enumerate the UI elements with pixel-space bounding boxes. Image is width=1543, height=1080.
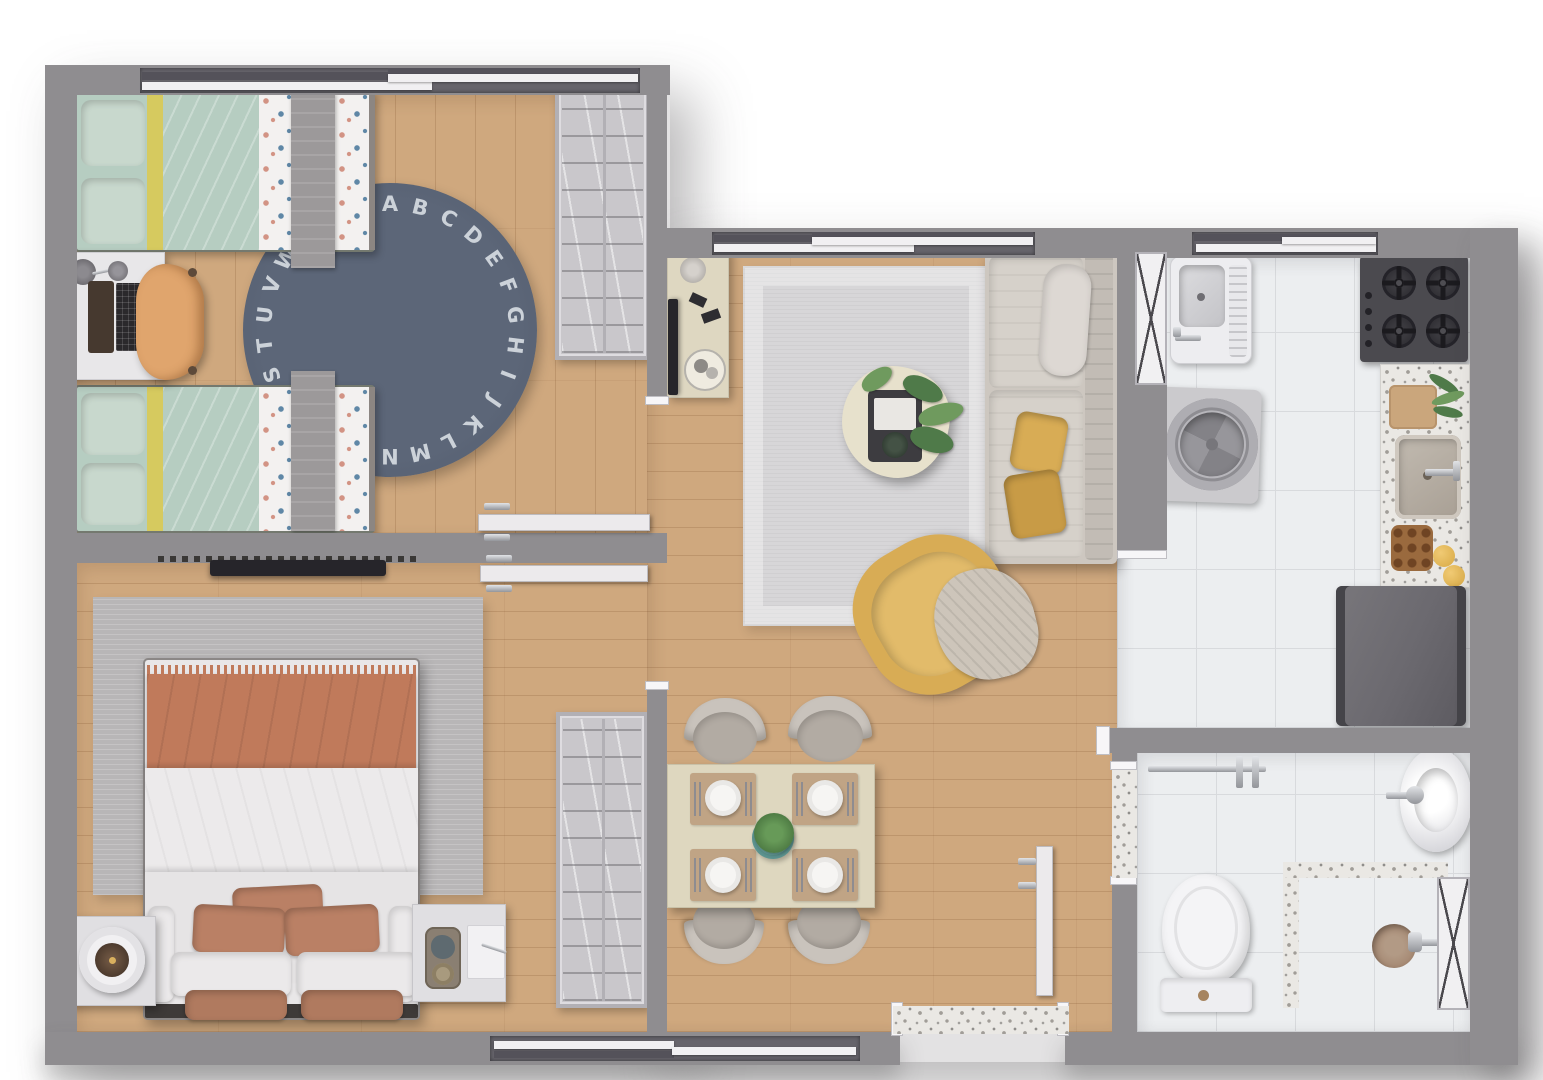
nightstand-right bbox=[412, 904, 506, 1002]
wall-cap bbox=[645, 396, 669, 405]
toilet-seat bbox=[1174, 886, 1238, 970]
fork bbox=[699, 858, 701, 892]
lamp-bulb bbox=[109, 957, 116, 964]
decor-ring bbox=[432, 963, 454, 985]
laundry-tank bbox=[1170, 256, 1252, 364]
towel-hook bbox=[1252, 756, 1259, 788]
dining-chair bbox=[788, 696, 872, 768]
spoon bbox=[852, 782, 854, 816]
knife bbox=[847, 858, 849, 892]
window-sash bbox=[1282, 237, 1376, 244]
knife bbox=[847, 782, 849, 816]
wall-cap bbox=[645, 681, 669, 690]
fork bbox=[796, 782, 798, 816]
spoon bbox=[750, 782, 752, 816]
pillow bbox=[81, 100, 145, 166]
rug-letter: N bbox=[381, 444, 399, 468]
master-double-bed bbox=[143, 658, 420, 1020]
rug-letter: I bbox=[495, 367, 520, 383]
fork bbox=[694, 858, 696, 892]
dining-table bbox=[667, 764, 875, 908]
kids-twin-bed-top bbox=[75, 90, 375, 252]
lemon bbox=[1433, 545, 1455, 567]
towel-bar bbox=[1148, 766, 1266, 772]
cooktop-knob bbox=[1365, 308, 1372, 315]
tv-panel bbox=[668, 299, 678, 395]
duvet-fold bbox=[145, 768, 418, 876]
window-glass bbox=[494, 1051, 674, 1058]
tank-drain bbox=[1197, 293, 1205, 301]
wall-bathroom-north bbox=[1098, 728, 1518, 753]
desk-chair bbox=[136, 264, 204, 380]
faucet-cross-handle bbox=[1406, 786, 1424, 804]
pillow-terracotta bbox=[284, 904, 380, 957]
wall-kids-east bbox=[647, 95, 667, 400]
door-handle bbox=[1018, 882, 1036, 889]
pillow bbox=[81, 178, 145, 244]
spoon bbox=[750, 858, 752, 892]
floorplan-canvas: ABCDEFGHIJKLMNOPQRSTUVWXYZ bbox=[0, 0, 1543, 1080]
centerpiece-plant bbox=[754, 813, 794, 853]
toilet bbox=[1154, 874, 1258, 1014]
plant-pot bbox=[882, 432, 908, 458]
blanket-stripe bbox=[147, 387, 163, 531]
washboard bbox=[1229, 265, 1247, 357]
entrance-door bbox=[1036, 846, 1053, 996]
flush-button bbox=[1198, 990, 1209, 1001]
master-window bbox=[490, 1036, 860, 1061]
shower-curb bbox=[1283, 878, 1299, 1008]
bathroom-window bbox=[1437, 877, 1470, 1010]
window-sash bbox=[812, 237, 1033, 245]
window-sash bbox=[672, 1047, 856, 1055]
rug-letter: V bbox=[258, 273, 286, 297]
fork bbox=[796, 858, 798, 892]
window-sash bbox=[142, 82, 432, 90]
chair-seat bbox=[797, 710, 863, 762]
rug-letter: A bbox=[382, 192, 398, 216]
burner bbox=[1382, 314, 1416, 348]
kitchen-counter bbox=[1380, 364, 1470, 588]
wall-master-east bbox=[647, 690, 667, 1032]
rug-letter: J bbox=[482, 392, 506, 412]
fork bbox=[801, 858, 803, 892]
spoon bbox=[852, 858, 854, 892]
pillow bbox=[81, 463, 145, 525]
knife bbox=[745, 858, 747, 892]
burner bbox=[1382, 266, 1416, 300]
rug-letter: F bbox=[494, 274, 522, 296]
tray-book bbox=[874, 398, 916, 430]
bed-frame bbox=[369, 92, 375, 250]
wall-cap bbox=[1096, 726, 1110, 755]
blanket-stripe bbox=[147, 92, 163, 250]
wall-cap bbox=[1117, 550, 1167, 559]
faucet-handle bbox=[1173, 327, 1181, 337]
window-sash bbox=[494, 1041, 674, 1049]
duvet bbox=[163, 92, 259, 250]
remote bbox=[689, 292, 708, 308]
wall-tv bbox=[210, 560, 386, 576]
rug-letter: S bbox=[258, 363, 286, 386]
laundry-window bbox=[1135, 252, 1167, 385]
door-handle bbox=[486, 585, 512, 592]
kids-window bbox=[140, 68, 640, 93]
burner bbox=[1426, 266, 1460, 300]
window-sash bbox=[1196, 244, 1376, 252]
pillow bbox=[81, 393, 145, 455]
sofa bbox=[985, 248, 1117, 564]
vase bbox=[680, 257, 706, 283]
rug-letter: E bbox=[480, 246, 508, 271]
door-handle bbox=[486, 555, 512, 562]
rug-letter: H bbox=[502, 335, 528, 355]
shower-curb bbox=[1283, 862, 1448, 878]
towel-hook bbox=[1236, 756, 1243, 788]
fork bbox=[699, 782, 701, 816]
dining-chair bbox=[684, 698, 766, 770]
entrance-threshold bbox=[893, 1006, 1069, 1034]
laptop-screen bbox=[88, 281, 114, 353]
knife bbox=[745, 782, 747, 816]
nightstand-left bbox=[68, 916, 156, 1006]
wall-bathroom-west-b bbox=[1112, 883, 1137, 1032]
rug-letter: L bbox=[437, 428, 460, 455]
rug-letter: G bbox=[502, 305, 528, 325]
kids-wardrobe bbox=[555, 88, 650, 360]
rug-letter: B bbox=[410, 194, 431, 221]
door-handle bbox=[484, 503, 510, 510]
placemat bbox=[792, 773, 858, 825]
lemon bbox=[1443, 565, 1465, 587]
burner bbox=[1426, 314, 1460, 348]
bathroom-round-sink bbox=[1400, 748, 1472, 852]
chair-knob bbox=[188, 366, 197, 375]
kids-bedroom-door bbox=[478, 514, 650, 531]
yellow-pillow bbox=[1002, 468, 1067, 540]
cooktop-knob bbox=[1365, 324, 1372, 331]
plate bbox=[807, 857, 843, 893]
remote bbox=[701, 308, 721, 324]
master-bedroom-door bbox=[480, 565, 648, 582]
fork bbox=[801, 782, 803, 816]
egg-tray bbox=[1391, 525, 1433, 571]
door-handle bbox=[1018, 858, 1036, 865]
herb-sprig bbox=[1432, 404, 1463, 420]
shower-head bbox=[1408, 932, 1422, 952]
window-sash bbox=[714, 244, 914, 252]
placemat bbox=[690, 849, 756, 901]
bottle bbox=[706, 367, 718, 379]
pillow-terracotta bbox=[301, 990, 403, 1020]
fork bbox=[694, 782, 696, 816]
cooktop-knob bbox=[1365, 340, 1372, 347]
master-closet bbox=[556, 712, 648, 1008]
bolster-pillow bbox=[1037, 262, 1093, 377]
faucet-handle bbox=[1453, 461, 1460, 481]
door-handle bbox=[484, 534, 510, 541]
gray-throw bbox=[291, 92, 335, 268]
duvet bbox=[163, 387, 259, 531]
placemat bbox=[792, 849, 858, 901]
wall-east bbox=[1470, 228, 1518, 1065]
cutting-board bbox=[1389, 385, 1437, 429]
gas-cooktop bbox=[1360, 256, 1468, 362]
rug-letter: M bbox=[407, 438, 433, 466]
wall-south-right bbox=[1065, 1032, 1518, 1065]
chair-knob bbox=[188, 268, 197, 277]
plate bbox=[705, 857, 741, 893]
table-tray bbox=[868, 390, 922, 462]
living-window bbox=[712, 232, 1035, 255]
chair-seat bbox=[693, 712, 757, 764]
plate bbox=[705, 780, 741, 816]
rug-letter: D bbox=[459, 221, 488, 251]
tv-sideboard bbox=[667, 250, 729, 398]
rug-letter: K bbox=[460, 410, 488, 439]
pillow-terracotta bbox=[192, 904, 286, 957]
plate bbox=[807, 780, 843, 816]
pillow-terracotta bbox=[185, 990, 287, 1020]
kids-twin-bed-bottom bbox=[75, 385, 375, 533]
rug-letter: T bbox=[252, 337, 278, 354]
placemat bbox=[690, 773, 756, 825]
refrigerator bbox=[1336, 586, 1466, 726]
kitchen-window bbox=[1192, 232, 1378, 255]
rug-letter: C bbox=[436, 204, 461, 232]
bathroom-threshold bbox=[1112, 770, 1137, 878]
wall-west bbox=[45, 65, 77, 1065]
decor-stone bbox=[431, 935, 455, 959]
cooktop-knob bbox=[1365, 292, 1372, 299]
yellow-pillow bbox=[1008, 410, 1069, 476]
bed-frame bbox=[369, 387, 375, 531]
terracotta-throw bbox=[147, 674, 416, 768]
wall-cap bbox=[1110, 761, 1137, 770]
window-sash bbox=[388, 74, 638, 82]
gray-throw bbox=[291, 371, 335, 531]
rug-letter: U bbox=[252, 305, 278, 325]
desk-speaker bbox=[108, 261, 128, 281]
